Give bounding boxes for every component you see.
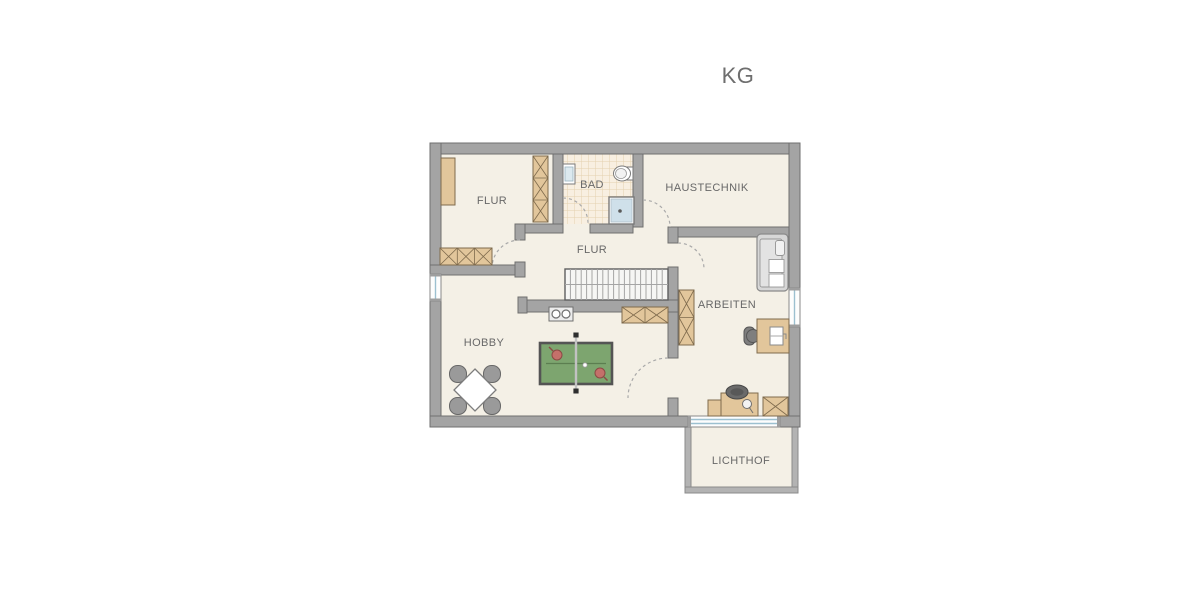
wall-segment xyxy=(792,427,798,493)
floorplan-page: KG FLUR BAD HAUSTECHNIK FLUR ARBEITEN HO… xyxy=(0,0,1200,600)
wall-segment xyxy=(430,143,800,154)
dining-table-with-chairs-icon xyxy=(450,366,501,415)
room-label-lichthof: LICHTHOF xyxy=(712,455,770,467)
wall-segment xyxy=(515,224,525,240)
wall-segment xyxy=(780,416,800,427)
wall-segment xyxy=(685,427,691,493)
sideboard-icon xyxy=(441,158,455,205)
room-label-arbeiten: ARBEITEN xyxy=(698,299,756,311)
window-symbol xyxy=(430,274,441,301)
sink-icon xyxy=(563,164,575,184)
cabinet-x-icon xyxy=(763,397,788,416)
wall-segment xyxy=(668,227,678,243)
plan-title: KG xyxy=(722,63,755,88)
room-label-flur-mid: FLUR xyxy=(577,244,607,256)
desk-with-laptop-icon xyxy=(757,319,789,353)
wall-segment xyxy=(430,416,688,427)
wall-segment xyxy=(518,297,527,313)
wall-segment xyxy=(553,154,563,224)
room-label-haustechnik: HAUSTECHNIK xyxy=(665,182,749,194)
room-label-hobby: HOBBY xyxy=(464,337,505,349)
shower-icon xyxy=(609,197,634,224)
window-symbol xyxy=(688,416,780,427)
cabinet-x-icon xyxy=(440,248,492,265)
wall-segment xyxy=(515,262,525,277)
window-symbol xyxy=(789,288,800,327)
room-label-bad: BAD xyxy=(580,179,604,191)
stairs-icon xyxy=(565,269,668,300)
room-label-flur-top: FLUR xyxy=(477,195,507,207)
cabinet-x-icon xyxy=(622,307,668,323)
wall-segment xyxy=(590,224,633,233)
sofa-icon xyxy=(757,234,788,291)
wall-segment xyxy=(685,487,798,493)
wall-segment xyxy=(668,398,678,416)
wardrobe-x-icon xyxy=(533,156,548,222)
laundry-basin-icon xyxy=(549,307,573,321)
toilet-icon xyxy=(614,166,634,181)
floorplan-drawing: KG FLUR BAD HAUSTECHNIK FLUR ARBEITEN HO… xyxy=(0,0,1200,600)
wall-segment xyxy=(789,143,800,427)
wall-segment xyxy=(430,265,525,275)
wardrobe-x-icon xyxy=(679,290,694,345)
